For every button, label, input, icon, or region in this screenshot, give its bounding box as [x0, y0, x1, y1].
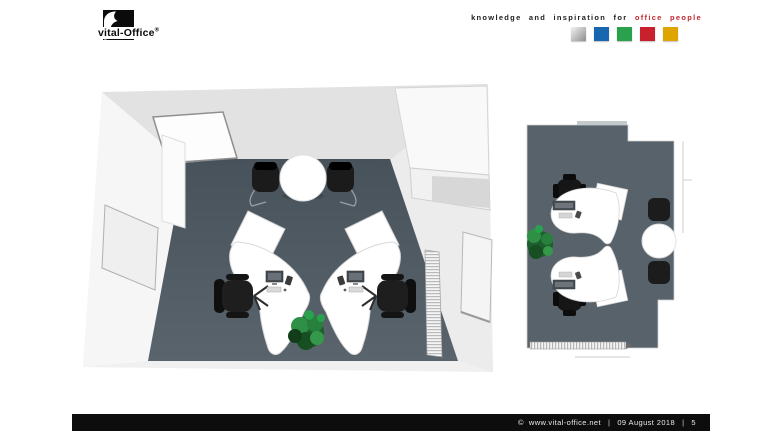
color-square-green — [617, 27, 632, 41]
brand-color-squares — [571, 27, 678, 41]
color-square-blue — [594, 27, 609, 41]
footer-separator: | — [608, 418, 610, 427]
footer-page-number: 5 — [691, 418, 696, 427]
footer-date: 09 August 2018 — [617, 418, 675, 427]
footer-copyright: © www.vital-office.net — [518, 418, 601, 427]
footer-bar: © www.vital-office.net | 09 August 2018 … — [72, 414, 710, 431]
round-table — [642, 224, 676, 258]
radiator — [425, 250, 442, 357]
radiator — [530, 342, 632, 349]
color-square-yellow — [663, 27, 678, 41]
floorplan-plan-room — [513, 108, 698, 363]
round-table — [280, 155, 326, 201]
tagline-prefix: knowledge and inspiration for — [471, 13, 627, 22]
brand-name: vital-Office® — [96, 27, 161, 39]
footer-separator: | — [682, 418, 684, 427]
color-square-silver — [571, 27, 586, 41]
presentation-slide: vital-Office® knowledge and inspiration … — [0, 0, 768, 432]
cabinet-left — [162, 135, 185, 228]
floorplan-perspective-room — [80, 80, 500, 380]
tagline-highlight: office people — [635, 13, 702, 22]
registered-mark: ® — [155, 28, 160, 34]
tagline: knowledge and inspiration for office peo… — [471, 13, 702, 22]
visitor-chair — [648, 198, 670, 221]
color-square-red — [640, 27, 655, 41]
whiteboard-right — [461, 232, 492, 322]
visitor-chair — [648, 261, 670, 284]
